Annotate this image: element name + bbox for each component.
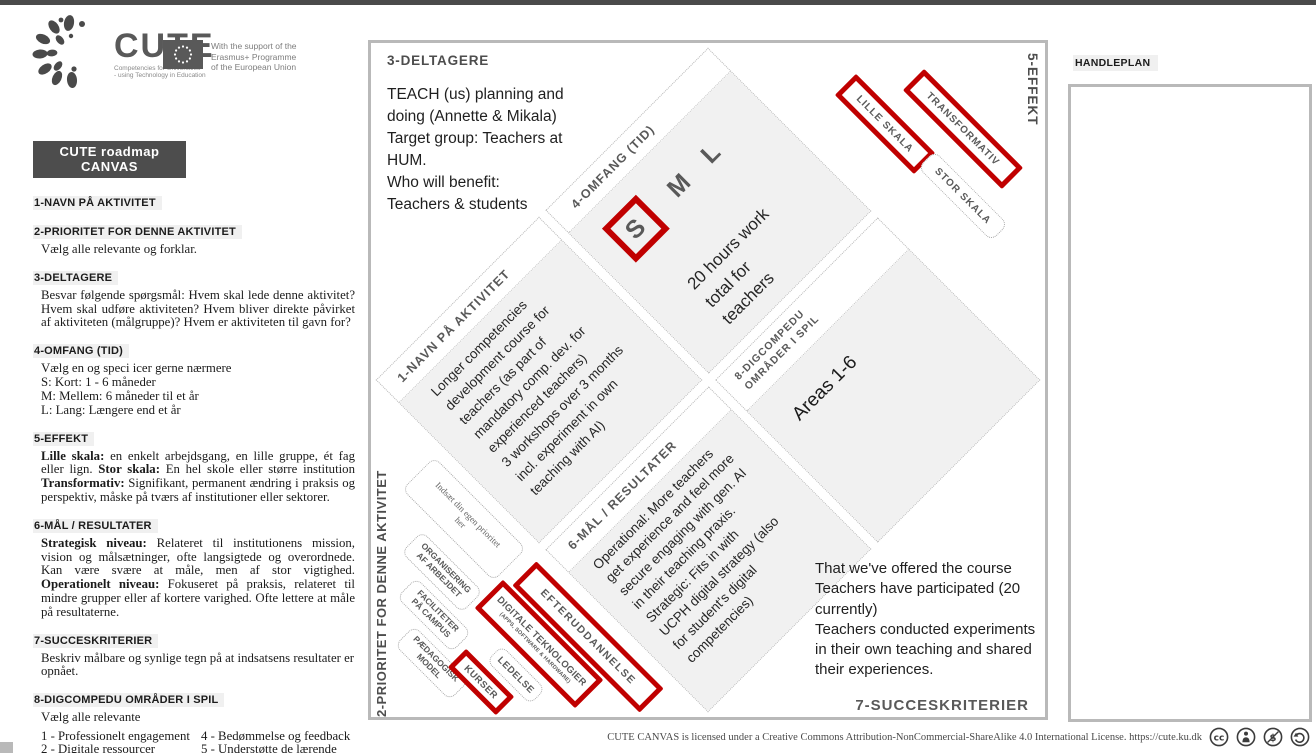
legend-heading-4: 4-OMFANG (TID)	[33, 344, 129, 358]
option-l[interactable]: L	[695, 138, 726, 169]
cc-by-person-icon	[1236, 727, 1256, 747]
corner-succes-heading: 7-SUCCESKRITERIER	[855, 697, 1029, 714]
legend-5-bold-3: Transformativ:	[41, 476, 125, 490]
license-text: CUTE CANVAS is licensed under a Creative…	[607, 732, 1202, 743]
digcompedu-list: 1 - Professionelt engagement 2 - Digital…	[41, 730, 357, 753]
legend-body-4-intro: Vælg en og speci icer gerne nærmere	[41, 362, 355, 376]
digcompedu-list-col2: 4 - Bedømmelse og feedback 5 - Understøt…	[201, 730, 357, 753]
sidebar-legend: CUTE roadmap CANVAS 1-NAVN PÅ AKTIVITET …	[33, 141, 357, 753]
legend-heading-3: 3-DELTAGERE	[33, 271, 118, 285]
cc-sa-icon	[1290, 727, 1310, 747]
legend-body-4-items: S: Kort: 1 - 6 måneder M: Mellem: 6 måne…	[41, 376, 355, 417]
corner-prioritet-heading: 2-PRIORITET FOR DENNE AKTIVITET	[374, 415, 389, 717]
corner-deltagere-heading: 3-DELTAGERE	[387, 53, 617, 68]
legend-6-bold-2: Operationelt niveau:	[41, 577, 159, 591]
legend-5-bold-1: Lille skala:	[41, 449, 104, 463]
handleplan-input-area[interactable]	[1068, 84, 1312, 722]
legend-heading-7: 7-SUCCESKRITERIER	[33, 634, 158, 648]
legend-body-8-intro: Vælg alle relevante	[41, 711, 355, 725]
cc-icon: cc	[1209, 727, 1229, 747]
legend-5-text-2: En hel skole eller større institution	[160, 462, 355, 476]
legend-body-5: Lille skala: en enkelt arbejdsgang, en l…	[41, 450, 355, 505]
legend-body-3: Besvar følgende spørgsmål: Hvem skal led…	[41, 289, 355, 330]
quadrant-digcompedu-text: Areas 1-6	[788, 351, 862, 425]
svg-text:cc: cc	[1214, 733, 1225, 743]
legend-body-6: Strategisk niveau: Relateret til institu…	[41, 537, 355, 620]
eu-flag-icon	[163, 40, 203, 74]
corner-succes: That we've offered the course Teachers h…	[815, 559, 1051, 681]
page: CUTE Competencies for Universities - usi…	[0, 0, 1316, 753]
legend-6-bold-1: Strategisk niveau:	[41, 536, 147, 550]
option-m[interactable]: M	[661, 168, 696, 203]
legend-heading-1: 1-NAVN PÅ AKTIVITET	[33, 196, 162, 210]
handleplan-heading: HANDLEPLAN	[1073, 55, 1158, 71]
corner-succes-text: That we've offered the course Teachers h…	[815, 559, 1051, 681]
corner-chip	[0, 742, 13, 753]
corner-effekt-heading: 5-EFFEKT	[1025, 53, 1040, 193]
legend-5-bold-2: Stor skala:	[98, 462, 160, 476]
roadmap-canvas: 1-NAVN PÅ AKTIVITET Longer competencies …	[368, 40, 1048, 720]
legend-heading-6: 6-MÅL / RESULTATER	[33, 519, 158, 533]
legend-heading-8: 8-DIGCOMPEDU OMRÅDER I SPIL	[33, 693, 224, 707]
corner-deltagere-text: TEACH (us) planning and doing (Annette &…	[387, 84, 617, 216]
eu-support-text: With the support of the Erasmus+ Program…	[211, 40, 297, 73]
cute-logo-icon	[30, 12, 108, 95]
legend-heading-5: 5-EFFEKT	[33, 432, 94, 446]
digcompedu-list-col1: 1 - Professionelt engagement 2 - Digital…	[41, 730, 201, 753]
legend-body-2: Vælg alle relevante og forklar.	[41, 243, 355, 257]
top-bar	[0, 0, 1316, 5]
eu-support: With the support of the Erasmus+ Program…	[163, 40, 297, 74]
sidebar-title-banner: CUTE roadmap CANVAS	[33, 141, 186, 178]
legend-body-7: Beskriv målbare og synlige tegn på at in…	[41, 652, 355, 680]
option-s[interactable]: S	[619, 213, 651, 245]
footer: CUTE CANVAS is licensed under a Creative…	[607, 727, 1310, 747]
corner-deltagere: 3-DELTAGERE TEACH (us) planning and doin…	[387, 53, 617, 216]
cc-nc-icon: $	[1263, 727, 1283, 747]
legend-heading-2: 2-PRIORITET FOR DENNE AKTIVITET	[33, 225, 242, 239]
